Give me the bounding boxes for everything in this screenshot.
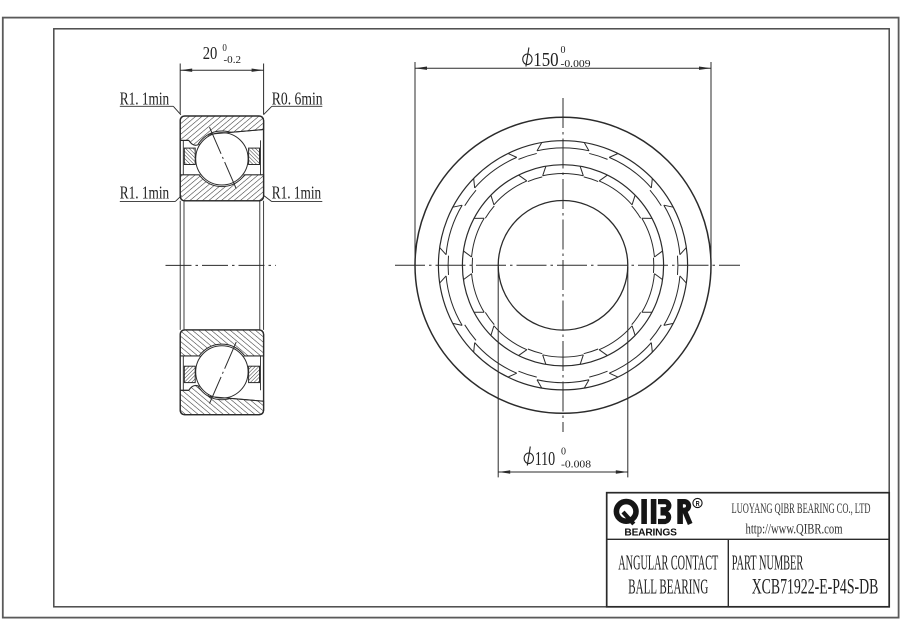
svg-text:-0.008: -0.008: [561, 460, 591, 471]
svg-text:http://www.QIBR.com: http://www.QIBR.com: [746, 522, 843, 538]
svg-text:ANGULAR CONTACT: ANGULAR CONTACT: [618, 550, 718, 574]
svg-text:R: R: [696, 499, 700, 508]
svg-text:20: 20: [203, 43, 218, 63]
svg-text:XCB71922-E-P4S-DB: XCB71922-E-P4S-DB: [752, 573, 879, 598]
svg-text:PART NUMBER: PART NUMBER: [732, 550, 804, 574]
svg-text:110: 110: [535, 449, 556, 470]
svg-text:-0.009: -0.009: [561, 59, 591, 70]
svg-text:LUOYANG QIBR BEARING CO., LTD: LUOYANG QIBR BEARING CO., LTD: [732, 501, 871, 517]
svg-text:150: 150: [533, 50, 558, 71]
svg-text:R1. 1min: R1. 1min: [120, 183, 169, 203]
svg-text:R0. 6min: R0. 6min: [272, 88, 323, 108]
svg-text:BEARINGS: BEARINGS: [624, 528, 677, 539]
svg-text:R1. 1min: R1. 1min: [120, 88, 169, 108]
svg-text:R1. 1min: R1. 1min: [272, 183, 321, 203]
svg-text:0: 0: [561, 447, 566, 458]
svg-text:BALL BEARING: BALL BEARING: [628, 574, 708, 598]
svg-text:0: 0: [561, 45, 566, 56]
svg-text:-0.2: -0.2: [224, 55, 242, 66]
svg-text:0: 0: [222, 43, 227, 54]
